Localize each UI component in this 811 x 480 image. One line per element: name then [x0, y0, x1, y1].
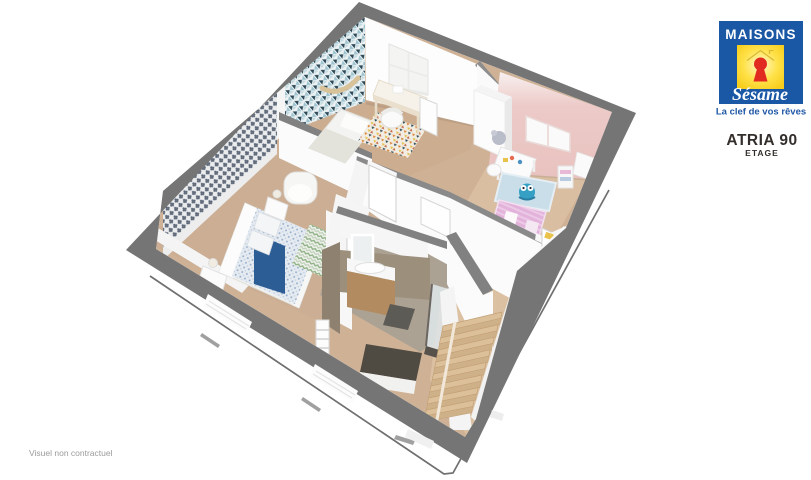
svg-text:ETAGE: ETAGE — [745, 148, 779, 158]
svg-text:La clef de vos rêves: La clef de vos rêves — [716, 107, 806, 118]
svg-text:ATRIA 90: ATRIA 90 — [726, 132, 797, 149]
svg-text:MAISONS: MAISONS — [725, 27, 796, 42]
svg-text:Visuel non contractuel: Visuel non contractuel — [29, 448, 113, 458]
svg-text:Sésame: Sésame — [732, 84, 788, 104]
